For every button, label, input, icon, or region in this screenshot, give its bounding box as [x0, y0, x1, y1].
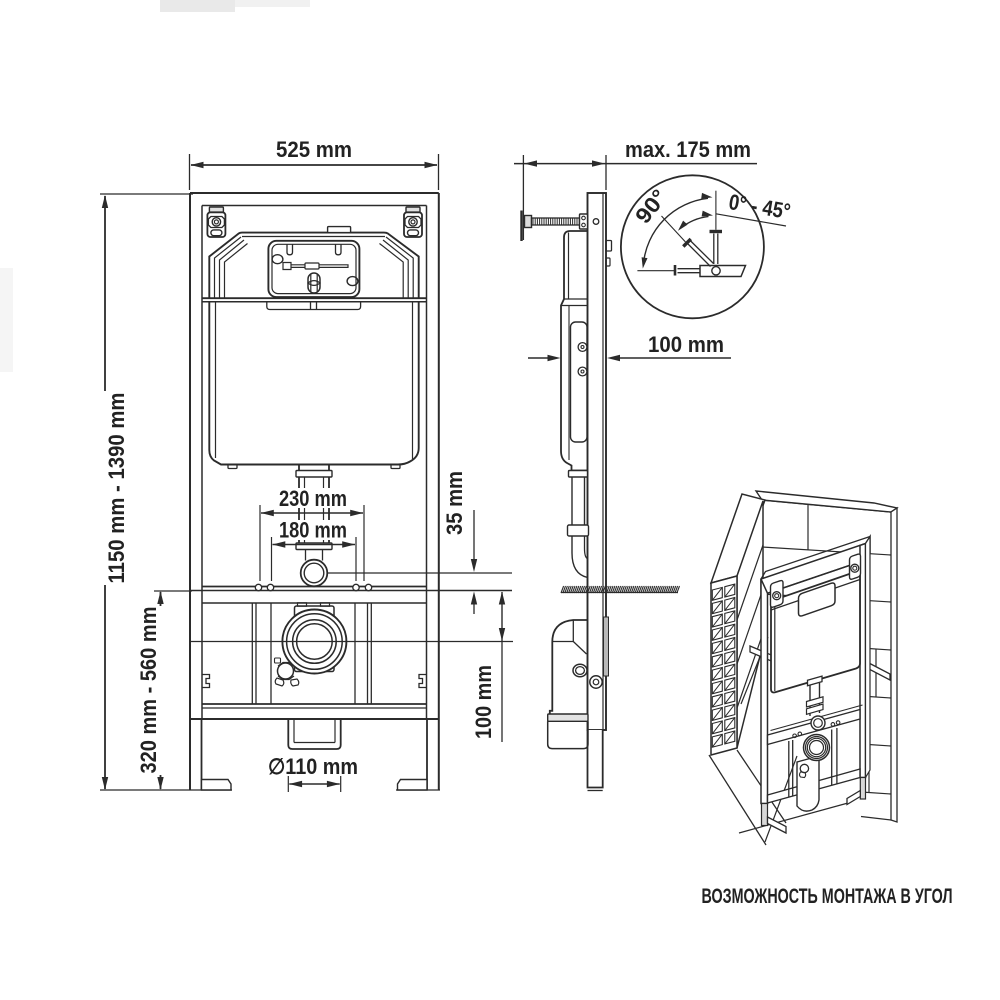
svg-text:1150 mm - 1390 mm: 1150 mm - 1390 mm: [104, 393, 129, 584]
svg-text:525 mm: 525 mm: [276, 137, 352, 162]
svg-text:ВОЗМОЖНОСТЬ МОНТАЖА В УГОЛ: ВОЗМОЖНОСТЬ МОНТАЖА В УГОЛ: [702, 885, 953, 908]
svg-text:100 mm: 100 mm: [471, 665, 496, 739]
svg-text:230 mm: 230 mm: [279, 486, 347, 511]
svg-text:180 mm: 180 mm: [279, 518, 347, 543]
svg-text:320 mm - 560 mm: 320 mm - 560 mm: [136, 607, 161, 774]
svg-text:100 mm: 100 mm: [648, 332, 724, 357]
svg-text:35 mm: 35 mm: [442, 471, 467, 535]
svg-text:∅110 mm: ∅110 mm: [268, 754, 358, 779]
svg-text:max. 175 mm: max. 175 mm: [625, 137, 751, 162]
